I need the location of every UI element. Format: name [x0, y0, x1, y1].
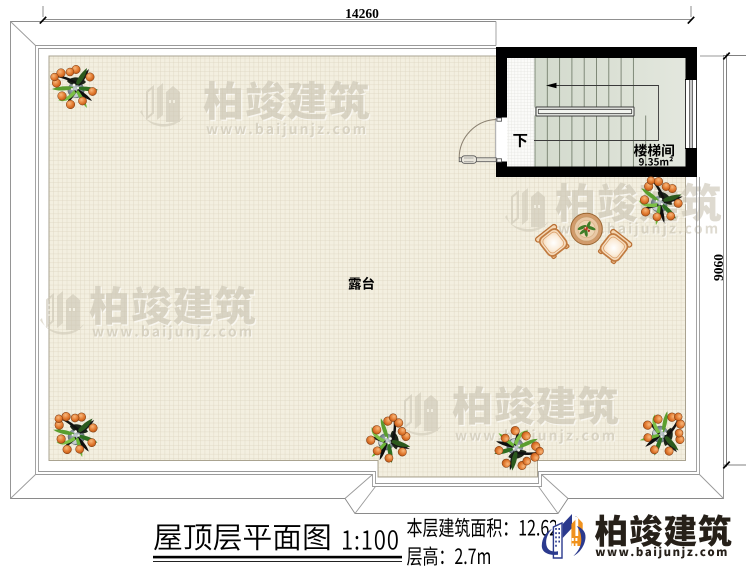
svg-text:9060: 9060 — [711, 254, 726, 281]
svg-text:14260: 14260 — [345, 6, 379, 21]
